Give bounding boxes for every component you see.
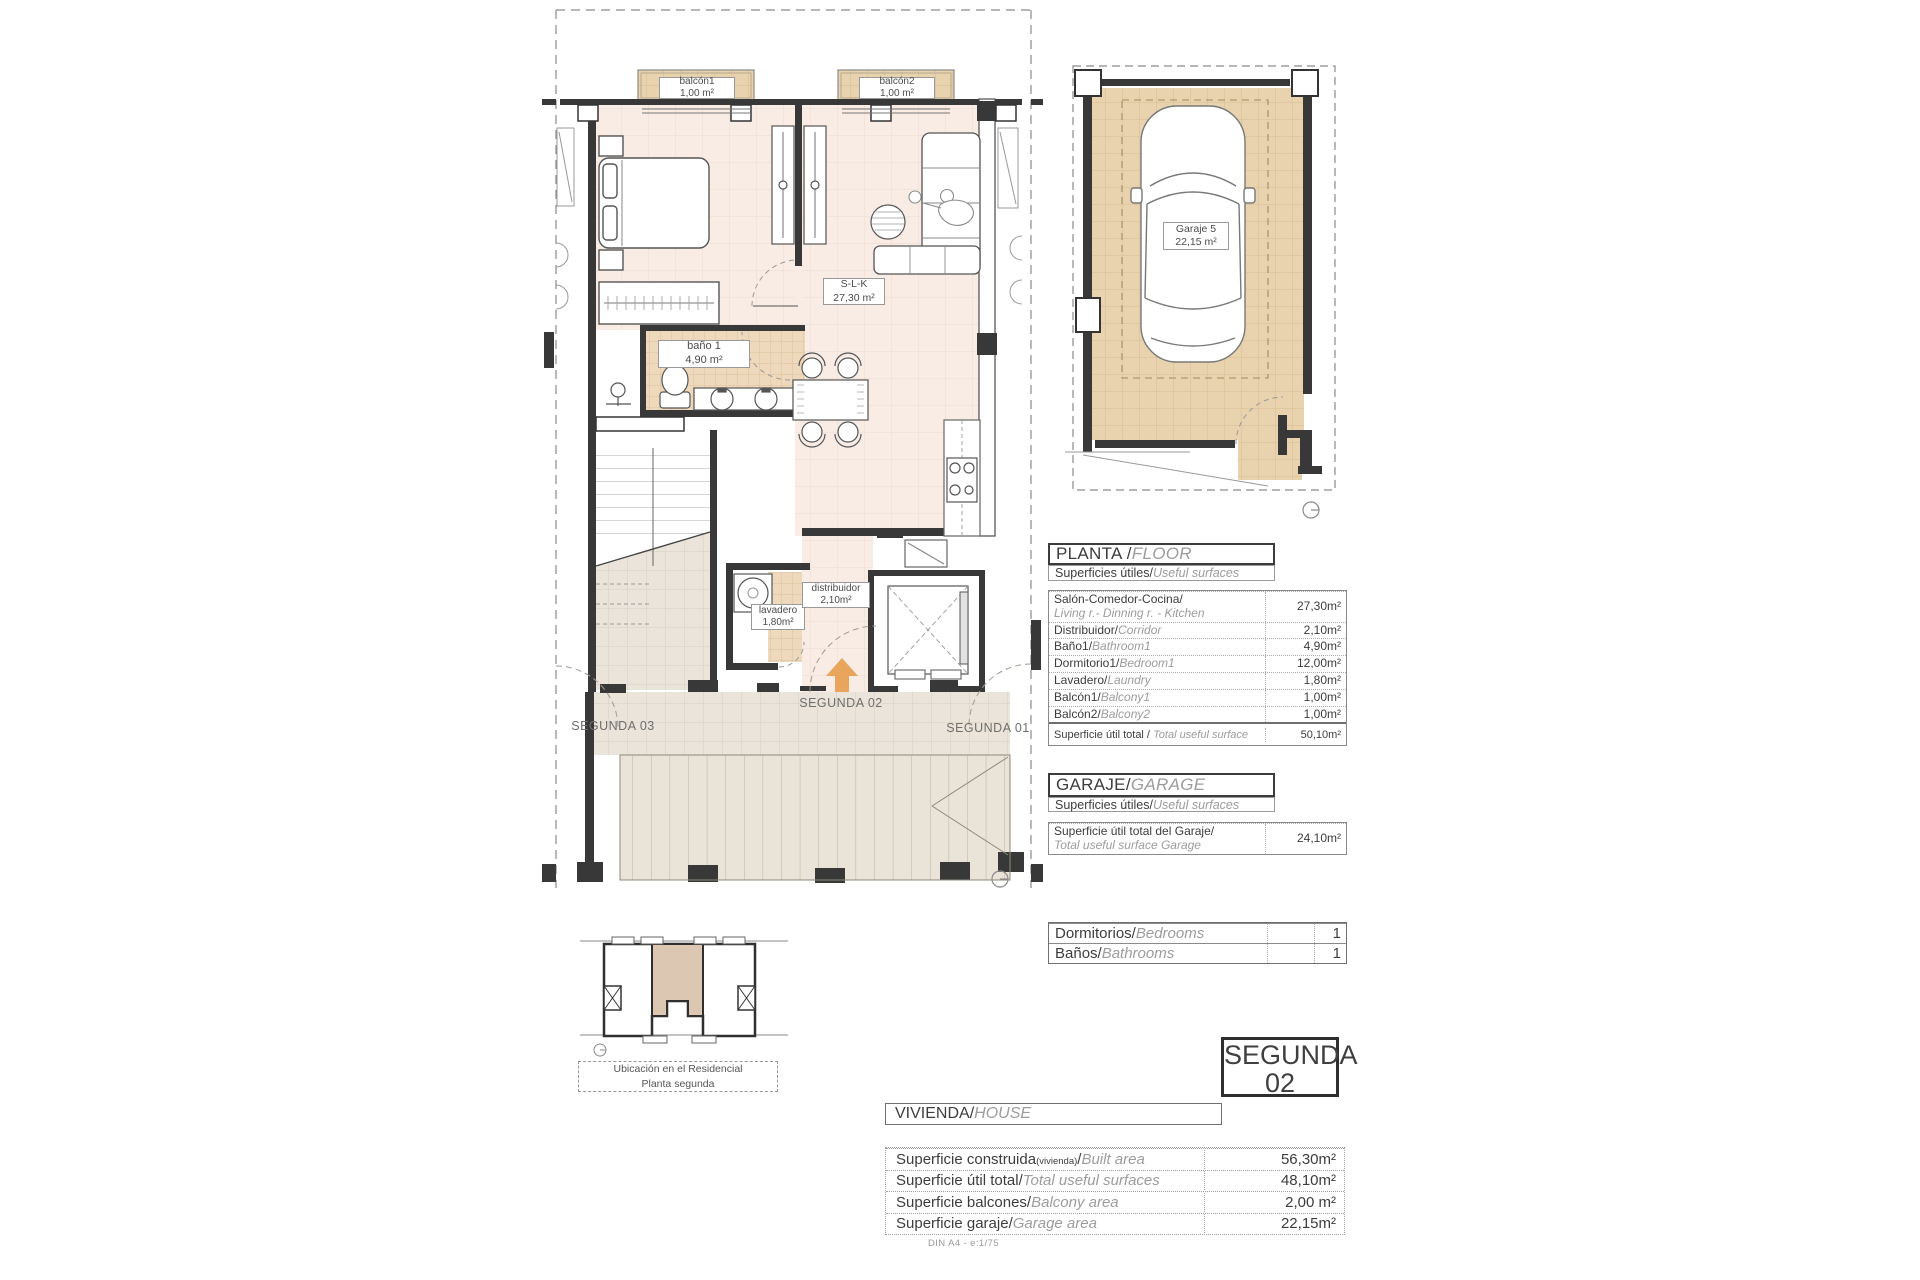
elevator [888, 586, 968, 679]
label-unit-right: SEGUNDA 01 [938, 721, 1038, 735]
floor-area-table: Salón-Comedor-Cocina/Living r.- Dinning … [1048, 590, 1347, 746]
table-row: Balcón1/Balcony1 1,00m² [1049, 689, 1346, 706]
house-area-table: Superficie construida(vivienda)/Built ar… [885, 1147, 1345, 1235]
table-row: Superficie útil total/Total useful surfa… [886, 1170, 1344, 1192]
garage-reference-mark [1303, 502, 1319, 518]
location-caption: Ubicación en el Residencial Planta segun… [578, 1061, 778, 1092]
label-bathroom: baño 1 4,90 m² [658, 340, 750, 368]
label-unit-here: SEGUNDA 02 [786, 696, 896, 710]
garage-area-table: Superficie útil total del Garaje/Total u… [1048, 822, 1347, 855]
label-garage: Garaje 5 22,15 m² [1163, 222, 1229, 250]
floorplan-drawing [0, 0, 1920, 1280]
table-row: Superficie útil total / Total useful sur… [1049, 722, 1346, 745]
floor-table-subtitle: Superficies útiles/Useful surfaces [1048, 565, 1275, 581]
table-row: Superficie construida(vivienda)/Built ar… [886, 1148, 1344, 1170]
garage-table-title: GARAJE/GARAGE [1048, 773, 1275, 797]
table-row: Balcón2/Balcony2 1,00m² [1049, 706, 1346, 723]
highlighted-unit [652, 944, 703, 1016]
table-row: Salón-Comedor-Cocina/Living r.- Dinning … [1049, 591, 1346, 622]
location-plan [580, 937, 788, 1056]
drawing-sheet: balcón1 1,00 m² balcón2 1,00 m² S-L-K 27… [0, 0, 1920, 1280]
table-row: Superficie balcones/Balcony area 2,00 m² [886, 1191, 1344, 1213]
garage-table-subtitle: Superficies útiles/Useful surfaces [1048, 797, 1275, 812]
table-row: Distribuidor/Corridor 2,10m² [1049, 622, 1346, 639]
table-row: Baños/Bathrooms 1 [1049, 943, 1346, 963]
unit-badge: SEGUNDA 02 [1221, 1037, 1339, 1097]
main-floor-plan [542, 10, 1043, 888]
garage-plan [1065, 66, 1335, 518]
label-living-room: S-L-K 27,30 m² [823, 278, 885, 305]
label-laundry: lavadero 1,80m² [751, 604, 805, 630]
label-unit-left: SEGUNDA 03 [563, 719, 663, 733]
label-balcony2: balcón2 1,00 m² [859, 77, 935, 99]
label-hall: distribuidor 2,10m² [802, 582, 870, 608]
table-row: Dormitorios/Bedrooms 1 [1049, 923, 1346, 943]
table-row: Superficie útil total del Garaje/Total u… [1049, 823, 1346, 854]
wardrobe [599, 282, 719, 324]
sheet-scale-note: DIN A4 - e:1/75 [928, 1238, 999, 1249]
table-row: Superficie garaje/Garage area 22,15m² [886, 1213, 1344, 1235]
coffee-table [871, 205, 905, 239]
house-table-title: VIVIENDA/HOUSE [885, 1103, 1222, 1125]
floor-table-title: PLANTA / FLOOR [1048, 543, 1275, 565]
room-counts-table: Dormitorios/Bedrooms 1 Baños/Bathrooms 1 [1048, 922, 1347, 964]
garage-ramp [1065, 452, 1268, 486]
mini-reference-mark [594, 1044, 606, 1056]
label-balcony1: balcón1 1,00 m² [659, 77, 735, 99]
table-row: Baño1/Bathroom1 4,90m² [1049, 638, 1346, 655]
table-row: Lavadero/Laundry 1,80m² [1049, 672, 1346, 689]
table-row: Dormitorio1/Bedroom1 12,00m² [1049, 655, 1346, 672]
party-wall [979, 99, 995, 536]
